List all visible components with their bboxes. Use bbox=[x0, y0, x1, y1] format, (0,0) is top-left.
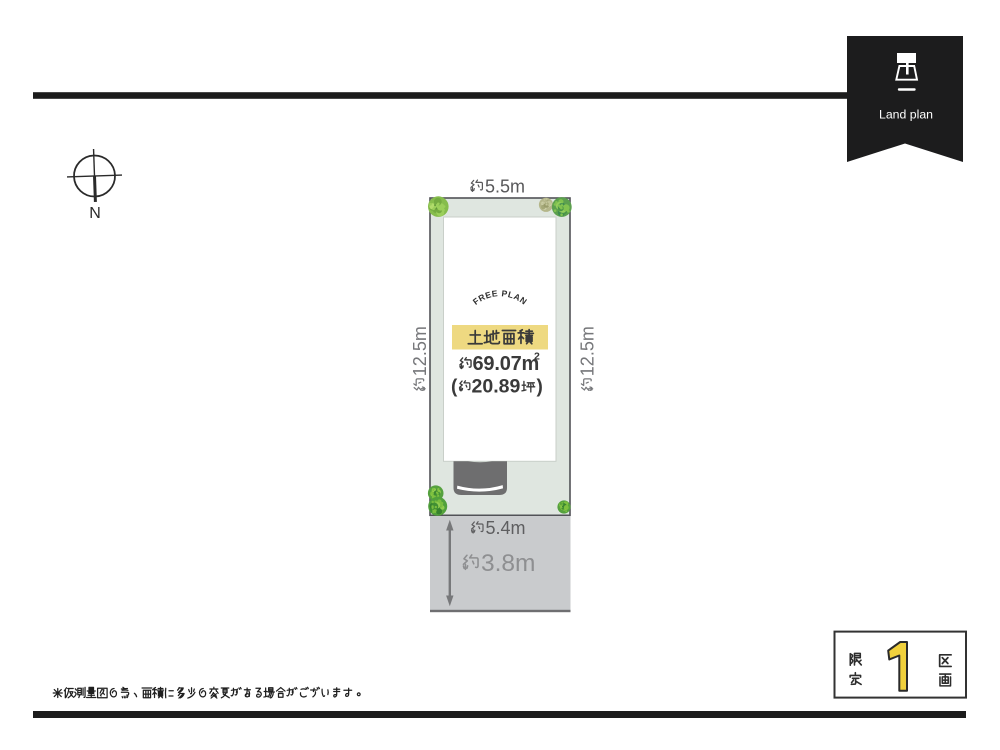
svg-text:2: 2 bbox=[534, 351, 540, 363]
svg-text:3.8m: 3.8m bbox=[481, 550, 535, 577]
svg-text:5.5m: 5.5m bbox=[485, 177, 525, 197]
svg-text:(: ( bbox=[451, 377, 458, 398]
svg-text:12.5m: 12.5m bbox=[577, 326, 597, 376]
svg-text:69.07m: 69.07m bbox=[473, 353, 540, 375]
svg-text:20.89: 20.89 bbox=[472, 376, 521, 398]
svg-text:Land plan: Land plan bbox=[879, 107, 933, 121]
svg-text:N: N bbox=[89, 205, 101, 222]
svg-text:12.5m: 12.5m bbox=[410, 326, 430, 376]
svg-text:5.4m: 5.4m bbox=[486, 518, 526, 538]
svg-text:): ) bbox=[537, 377, 543, 398]
